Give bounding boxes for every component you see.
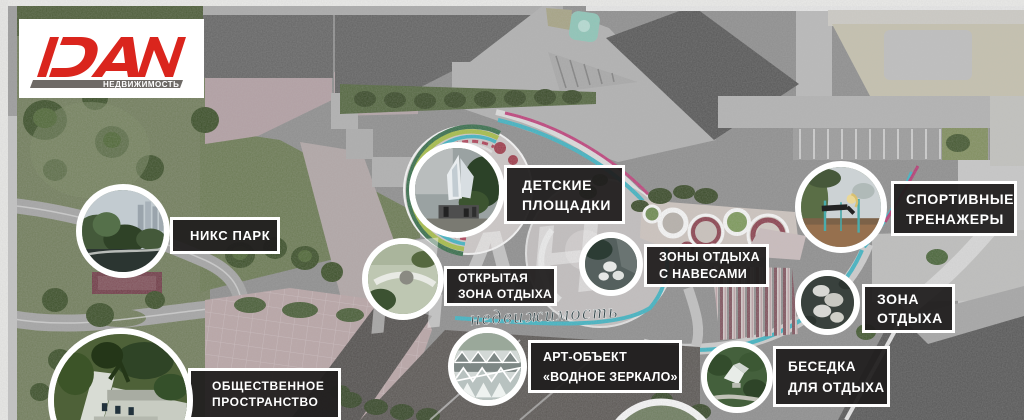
svg-text:НЕДВИЖИМОСТЬ: НЕДВИЖИМОСТЬ — [103, 80, 179, 89]
